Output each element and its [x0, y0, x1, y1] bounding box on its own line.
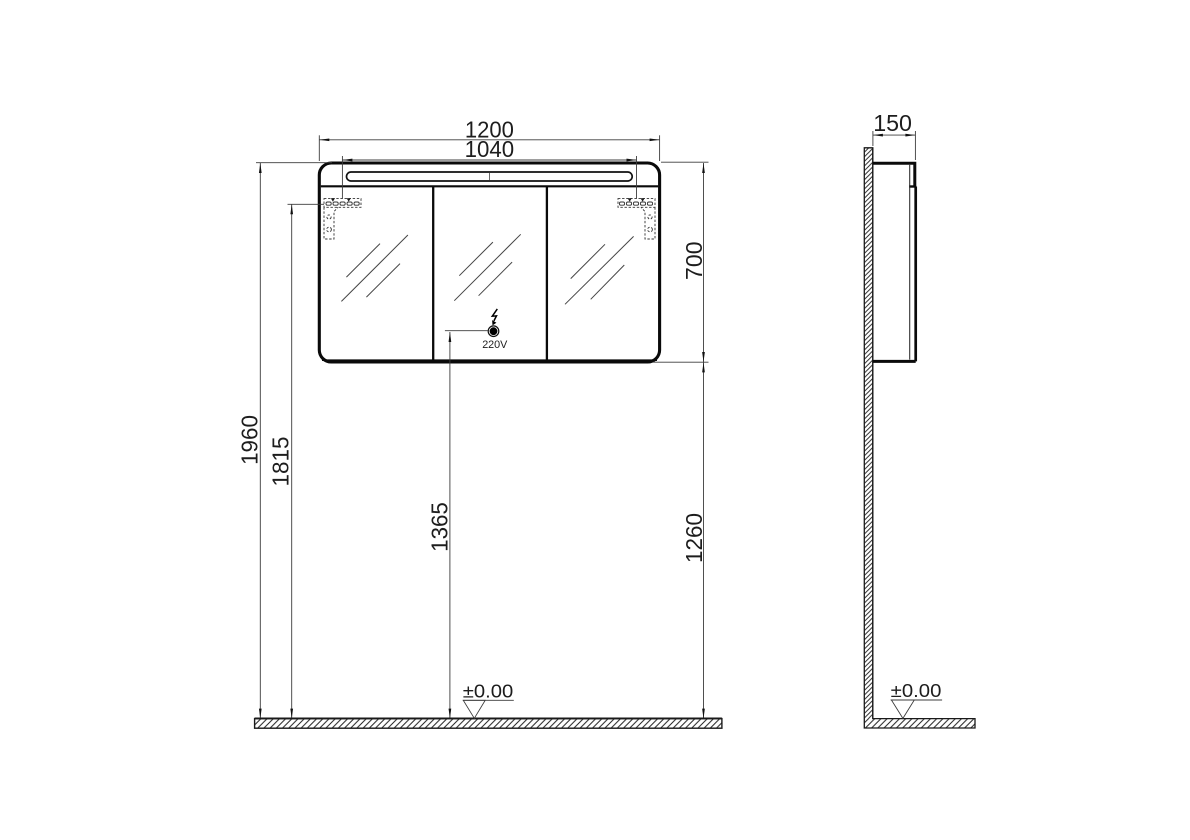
svg-text:150: 150 [873, 110, 912, 136]
svg-text:1815: 1815 [268, 437, 294, 487]
svg-text:1960: 1960 [237, 415, 263, 465]
svg-text:±0.00: ±0.00 [891, 680, 942, 701]
svg-text:1040: 1040 [465, 136, 515, 162]
svg-text:1365: 1365 [427, 502, 453, 552]
svg-text:700: 700 [681, 241, 707, 280]
svg-text:±0.00: ±0.00 [463, 681, 514, 702]
svg-text:220V: 220V [482, 339, 508, 351]
svg-text:1260: 1260 [681, 513, 707, 563]
